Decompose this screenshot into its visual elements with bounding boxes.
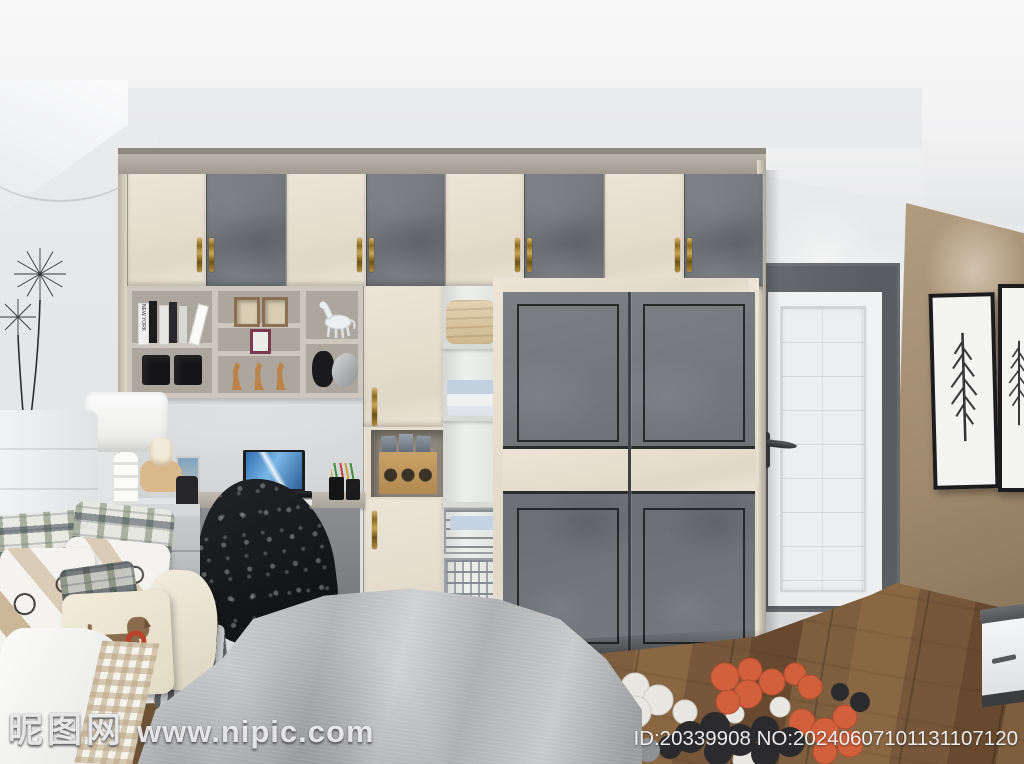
cabinet-handle[interactable] [675, 238, 680, 272]
upper-cabinet-door[interactable] [366, 174, 445, 286]
file-organizer-box [379, 452, 437, 494]
horse-figurine [312, 299, 358, 339]
book-leaning [188, 304, 209, 346]
cabinet-handle[interactable] [372, 511, 377, 549]
upper-cabinet-door[interactable] [127, 174, 206, 286]
cabinet-handle[interactable] [197, 238, 202, 272]
book [179, 306, 187, 343]
image-id-watermark: ID:20339908 NO:20240607101131107120 [633, 727, 1018, 751]
cabinet-handle[interactable] [357, 238, 362, 272]
shelf-board [306, 339, 358, 344]
shelf-board [443, 416, 499, 421]
book-spine-text: NEW YORK [139, 304, 146, 331]
silver-sculpture [330, 351, 360, 388]
bedroom-render: NEW YORK [0, 0, 1024, 764]
shelf-board [443, 344, 499, 349]
door-panel-outline [517, 304, 619, 442]
door-panel [780, 306, 866, 592]
folded-shirt [447, 394, 497, 406]
cabinet-handle[interactable] [209, 238, 214, 272]
book [169, 302, 177, 343]
mini-frame [262, 297, 288, 327]
dark-sculpture [312, 351, 334, 387]
upper-cabinet-door[interactable] [524, 174, 604, 286]
cabinet-handle[interactable] [527, 238, 532, 272]
dandelion-head [0, 248, 66, 335]
wire-basket[interactable] [444, 508, 498, 554]
storage-box [174, 355, 202, 385]
cow-figurine-head [150, 438, 172, 466]
picture-frame [998, 284, 1024, 492]
wardrobe-crown [118, 154, 766, 174]
sliding-door-divider [628, 292, 631, 664]
book: NEW YORK [138, 303, 149, 345]
table-lamp-base [114, 452, 138, 508]
entry-door[interactable] [768, 292, 882, 606]
door-panel-outline [643, 508, 745, 644]
mini-frame [234, 297, 260, 327]
giraffe-figurines [228, 357, 296, 391]
upper-cabinet-door[interactable] [286, 174, 366, 286]
upper-cabinet-door[interactable] [604, 174, 684, 286]
shelf-divider [212, 291, 218, 393]
feather-artwork [1006, 288, 1024, 478]
pen-cup[interactable] [329, 477, 344, 500]
dresser [980, 604, 1024, 712]
cabinet-handle[interactable] [687, 238, 692, 272]
cabinet-handle[interactable] [515, 238, 520, 272]
folded-blanket [446, 300, 496, 344]
upper-cabinet-door[interactable] [684, 174, 763, 286]
site-watermark-url: www.nipic.com [137, 714, 375, 749]
site-watermark-cn: 昵图网 [8, 711, 125, 750]
site-watermark: 昵图网www.nipic.com [8, 702, 375, 753]
picture-frame [928, 292, 999, 490]
shelving-unit: NEW YORK [127, 286, 363, 398]
feather-artwork [937, 296, 992, 477]
book [149, 301, 157, 343]
folded-shirt [448, 406, 496, 416]
wardrobe-wall-shadow [766, 170, 780, 640]
upper-cabinet-door[interactable] [445, 174, 524, 286]
cabinet-handle[interactable] [369, 238, 374, 272]
shelf-board [443, 502, 499, 507]
pen-cup[interactable] [346, 479, 360, 500]
door-panel-outline [643, 304, 745, 442]
mini-frame-clock [250, 329, 271, 354]
folded-shirt [447, 380, 497, 394]
storage-box [142, 355, 170, 385]
upper-cabinet-door[interactable] [206, 174, 286, 286]
cabinet-handle[interactable] [372, 388, 377, 426]
book [159, 305, 169, 345]
clothes-in-basket [450, 516, 494, 530]
